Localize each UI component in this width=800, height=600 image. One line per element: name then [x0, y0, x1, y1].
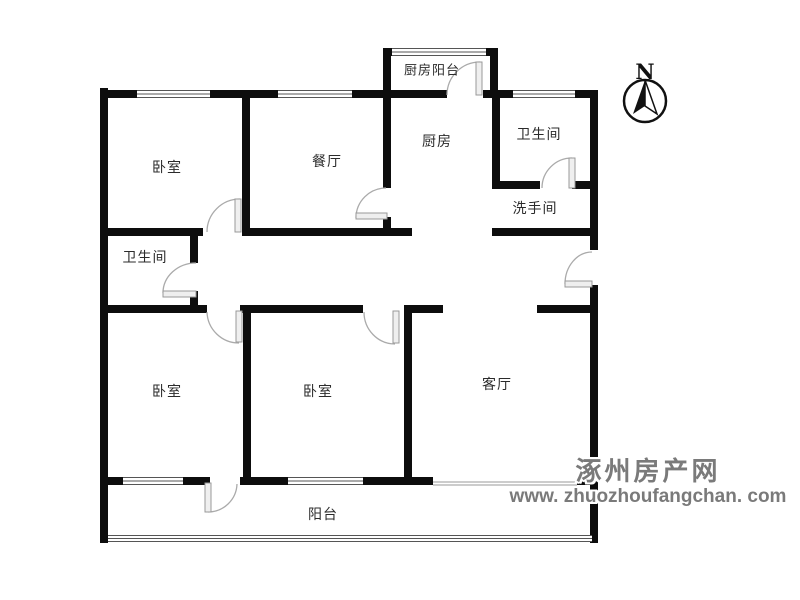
window-dining	[278, 90, 352, 98]
floor-plan-drawing: N	[0, 0, 800, 600]
wall-bedrooms-divider	[243, 313, 251, 477]
room-label-kitchen-balcony: 厨房阳台	[404, 60, 460, 79]
door-bedroom-bottom-middle	[364, 311, 399, 344]
watermark-site-name: 涿州房产网	[510, 458, 787, 485]
door-bedroom-bottom-left	[207, 311, 242, 343]
room-label-washroom: 洗手间	[513, 198, 558, 218]
wall-corridor-bottom-b	[240, 305, 363, 313]
kitchen-balcony-left-wall	[383, 48, 391, 98]
wall-bedroom-living-divider	[404, 313, 412, 477]
watermark-site-url: www. zhuozhoufangchan. com	[510, 487, 787, 507]
door-leaf	[393, 311, 399, 343]
door-swing-arc	[208, 484, 237, 512]
wall-right-upper	[590, 90, 598, 250]
door-leaf	[569, 158, 575, 188]
door-bedroom-top-left	[207, 199, 241, 232]
room-label-bedroom-bottom-left: 卧室	[152, 381, 182, 401]
door-entrance	[565, 252, 592, 287]
door-swing-arc	[207, 312, 239, 343]
wall-corridor-bottom-c	[404, 305, 443, 313]
floor-plan: N 卧室 餐厅 厨房阳台 厨房 卫生间 洗手间 卫生间 卧室 卧室 客厅 阳台 …	[0, 0, 800, 600]
door-balcony	[205, 483, 237, 512]
wall-corridor-top-a	[100, 228, 203, 236]
balcony-railing	[108, 535, 592, 542]
wall-bathroom-left-a	[190, 228, 198, 263]
wall-top-b	[210, 90, 278, 98]
room-label-bathroom-left: 卫生间	[123, 247, 168, 267]
window-kitchen-balcony	[392, 48, 486, 56]
room-label-kitchen: 厨房	[422, 131, 452, 151]
wall-corridor-bottom-d	[537, 305, 598, 313]
door-swing-arc	[565, 252, 592, 284]
window-bedroom-bottom-middle	[288, 477, 363, 485]
door-leaf	[235, 199, 241, 232]
door-leaf	[163, 291, 196, 297]
window-bedroom-bottom-left	[123, 477, 183, 485]
wall-top-a	[100, 90, 137, 98]
room-label-bathroom-top-right: 卫生间	[517, 124, 562, 144]
wall-corridor-top-b	[245, 228, 412, 236]
room-label-bedroom-bottom-middle: 卧室	[303, 381, 333, 401]
wall-left-outer	[100, 88, 108, 543]
door-bathroom-top-right	[542, 158, 575, 188]
room-label-dining: 餐厅	[312, 151, 342, 171]
wall-top-c	[352, 90, 447, 98]
door-swing-arc	[163, 263, 196, 293]
door-leaf	[236, 311, 242, 342]
compass: N	[624, 59, 666, 122]
wall-bottom-d	[363, 477, 433, 485]
wall-corridor-bottom-a	[100, 305, 207, 313]
wall-kitchen-bathroom-divider	[492, 98, 500, 189]
door-leaf	[476, 62, 482, 95]
wall-bathroom-tr-bottom-a	[497, 181, 540, 189]
room-label-balcony: 阳台	[308, 504, 338, 524]
door-swing-arc	[364, 312, 395, 344]
wall-corridor-top-c	[492, 228, 598, 236]
kitchen-balcony-right-wall	[490, 48, 498, 98]
door-bathroom-left	[163, 263, 196, 297]
door-dining-kitchen	[356, 188, 387, 219]
door-leaf	[565, 281, 592, 287]
wall-bedroom-dining-divider	[242, 98, 250, 236]
window-bathroom-top-right	[513, 90, 575, 98]
door-swing-arc	[542, 158, 572, 188]
door-leaf	[205, 483, 211, 512]
door-leaf	[356, 213, 387, 219]
room-label-bedroom-top-left: 卧室	[152, 157, 182, 177]
wall-bottom-c	[240, 477, 288, 485]
room-label-living-room: 客厅	[482, 374, 512, 394]
watermark: 涿州房产网 www. zhuozhoufangchan. com	[510, 458, 787, 507]
wall-bottom-a	[100, 477, 123, 485]
window-bedroom-top-left	[137, 90, 210, 98]
wall-dining-kitchen-divider	[383, 98, 391, 188]
